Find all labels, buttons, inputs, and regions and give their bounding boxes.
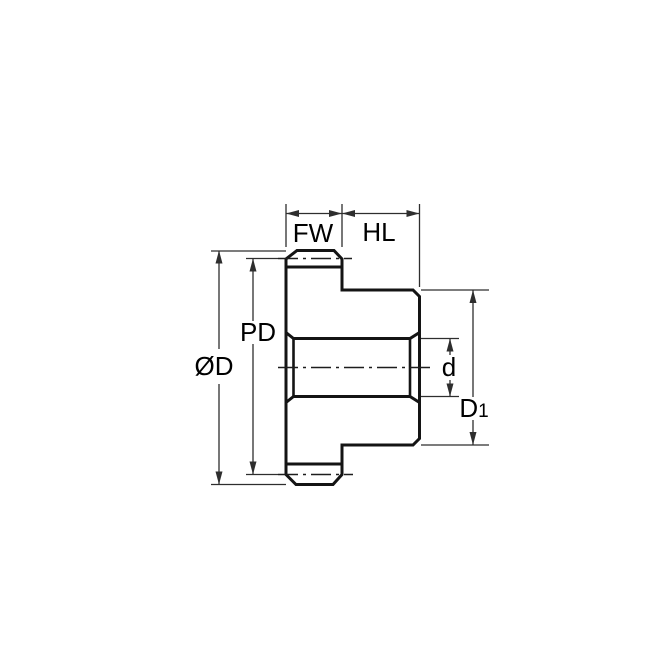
gear-cross-section	[278, 251, 430, 485]
gear-body-upper	[286, 267, 420, 339]
gear-dimension-diagram: FW HL ØD PD	[0, 0, 670, 670]
arrowhead-down-icon	[250, 462, 257, 475]
hub-length-label: HL	[362, 217, 395, 247]
arrowhead-up-icon	[447, 339, 454, 352]
outside-diameter-label: ØD	[195, 351, 234, 381]
arrowhead-left-icon	[342, 210, 355, 217]
arrowhead-down-icon	[447, 384, 454, 397]
pitch-diameter-label: PD	[240, 317, 276, 347]
face-width-label: FW	[293, 218, 334, 248]
hub-diameter-label: D1	[459, 393, 488, 423]
arrowhead-up-icon	[470, 290, 477, 303]
arrowhead-up-icon	[250, 259, 257, 272]
dim-pitch-diameter: PD	[240, 259, 278, 475]
bore-diameter-label: d	[442, 352, 456, 382]
arrowhead-up-icon	[216, 251, 223, 264]
arrowhead-down-icon	[216, 472, 223, 485]
drawing-canvas: FW HL ØD PD	[0, 0, 670, 670]
dim-outside-diameter: ØD	[195, 251, 287, 485]
arrowhead-right-icon	[329, 210, 342, 217]
gear-body-lower	[286, 397, 420, 465]
dim-face-width-hub-length: FW HL	[286, 204, 420, 287]
arrowhead-down-icon	[470, 432, 477, 445]
arrowhead-left-icon	[286, 210, 299, 217]
arrowhead-right-icon	[407, 210, 420, 217]
